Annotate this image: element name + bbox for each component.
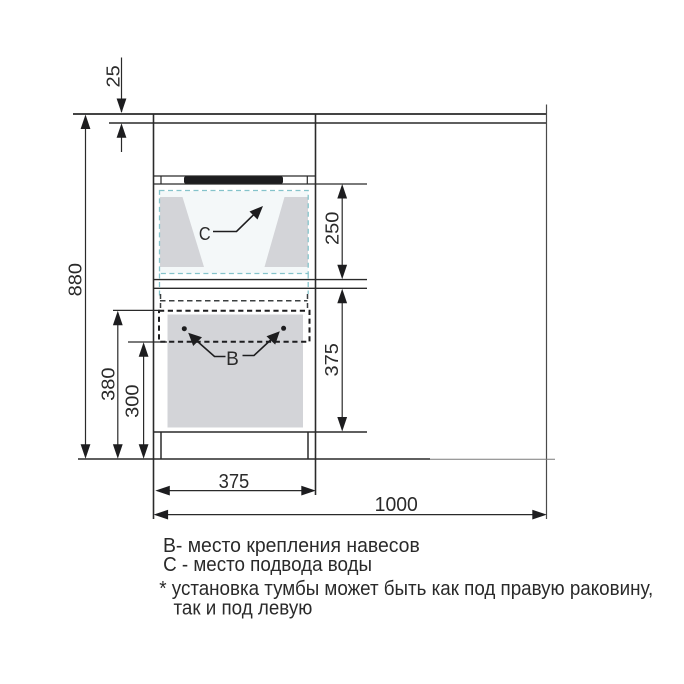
svg-text:1000: 1000	[375, 494, 418, 516]
svg-text:380: 380	[99, 368, 119, 401]
svg-text:С - место подвода воды: С - место подвода воды	[163, 553, 372, 576]
svg-text:375: 375	[219, 471, 250, 493]
svg-text:B: B	[226, 349, 239, 370]
svg-text:375: 375	[323, 343, 343, 376]
svg-text:25: 25	[104, 65, 124, 87]
svg-text:300: 300	[123, 385, 143, 418]
svg-text:так и под левую: так и под левую	[174, 597, 313, 620]
svg-text:250: 250	[323, 212, 343, 245]
svg-text:C: C	[199, 223, 211, 244]
svg-text:880: 880	[66, 263, 86, 296]
